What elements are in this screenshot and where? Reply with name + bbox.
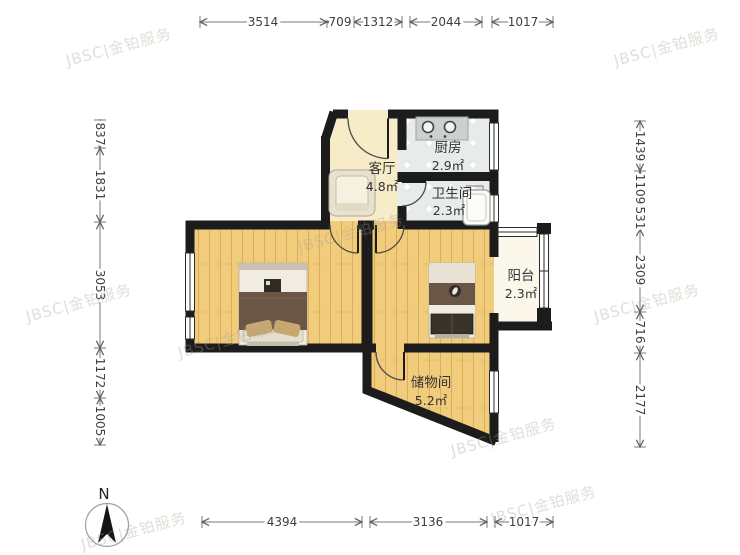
dim-label: 1439 [633,131,647,162]
watermark-text: JBSC|金铂服务 [23,280,133,326]
dim-label: 1312 [363,15,394,29]
bed-right [429,263,475,338]
window-bedroom-left-1 [186,253,195,311]
dim-label: 2044 [431,15,462,29]
balcony-name: 阳台 [508,268,535,284]
dim-label: 4394 [267,515,298,529]
balcony-corner-post-top [537,223,551,234]
floorplan-svg: 客厅 4.8㎡ 厨房 2.9㎡ 卫生间 2.3㎡ 阳台 2.3㎡ 储物间 5.2… [0,0,740,555]
dim-label: 1172 [93,358,107,389]
dim-label: 3136 [413,515,444,529]
window-storage [490,371,499,413]
dim-label: 531 [633,207,647,230]
floorplan-page: 客厅 4.8㎡ 厨房 2.9㎡ 卫生间 2.3㎡ 阳台 2.3㎡ 储物间 5.2… [0,0,740,555]
window-kitchen [490,123,499,170]
window-bathroom [490,195,499,222]
dim-label: 1831 [93,170,107,201]
living-room-area: 4.8㎡ [366,179,399,194]
watermark-text: JBSC|金铂服务 [488,482,598,528]
watermark-text: JBSC|金铂服务 [63,24,173,70]
dim-label: 1005 [93,406,107,437]
dim-label: 1017 [508,15,539,29]
dim-label: 837 [93,123,107,146]
dim-label: 709 [329,15,352,29]
balcony-area: 2.3㎡ [505,286,538,301]
dim-label: 2309 [633,255,647,286]
dimension-chain-top: 3514 709 1312 2044 1017 [200,15,553,29]
watermark-text: JBSC|金铂服务 [611,24,721,70]
dim-label: 2177 [633,385,647,416]
bathroom-name: 卫生间 [432,186,473,202]
bathroom-area: 2.3㎡ [433,203,466,218]
dimension-chain-right: 1439 1109 531 2309 716 2177 [633,121,647,447]
window-bedroom-left-2 [186,317,195,339]
dim-label: 3514 [248,15,279,29]
kitchen-name: 厨房 [435,140,462,156]
kitchen-area: 2.9㎡ [432,158,465,173]
north-label: N [98,485,109,503]
storage-area: 5.2㎡ [415,393,448,408]
stove [416,117,468,140]
dimension-chain-left: 837 1831 3053 1172 1005 [93,120,107,445]
dim-label: 1109 [633,174,647,205]
living-room-name: 客厅 [369,160,396,177]
window-balcony-top [498,228,537,237]
window-balcony-right [540,234,549,308]
storage-name: 储物间 [411,375,452,391]
watermark-text: JBSC|金铂服务 [591,280,701,326]
dim-label: 716 [633,321,647,344]
balcony-corner-post-bottom [537,308,551,322]
